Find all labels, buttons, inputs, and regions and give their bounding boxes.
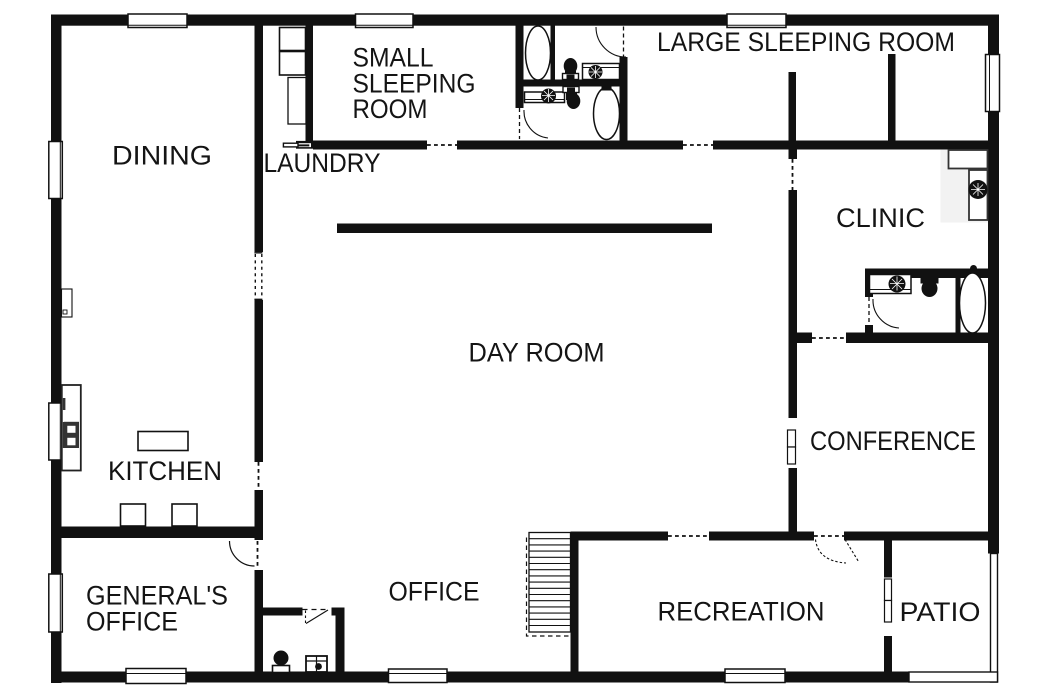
svg-text:PATIO: PATIO	[900, 597, 981, 627]
svg-text:RECREATION: RECREATION	[658, 597, 825, 627]
svg-text:LARGE SLEEPING ROOM: LARGE SLEEPING ROOM	[657, 27, 955, 57]
svg-text:KITCHEN: KITCHEN	[108, 456, 222, 486]
svg-text:DINING: DINING	[112, 141, 212, 171]
svg-text:DAY ROOM: DAY ROOM	[469, 338, 605, 368]
svg-text:CLINIC: CLINIC	[836, 203, 925, 233]
svg-text:CONFERENCE: CONFERENCE	[810, 426, 976, 456]
svg-text:OFFICE: OFFICE	[86, 607, 178, 637]
svg-text:LAUNDRY: LAUNDRY	[264, 148, 381, 178]
svg-text:ROOM: ROOM	[353, 94, 428, 124]
svg-text:OFFICE: OFFICE	[389, 577, 480, 607]
